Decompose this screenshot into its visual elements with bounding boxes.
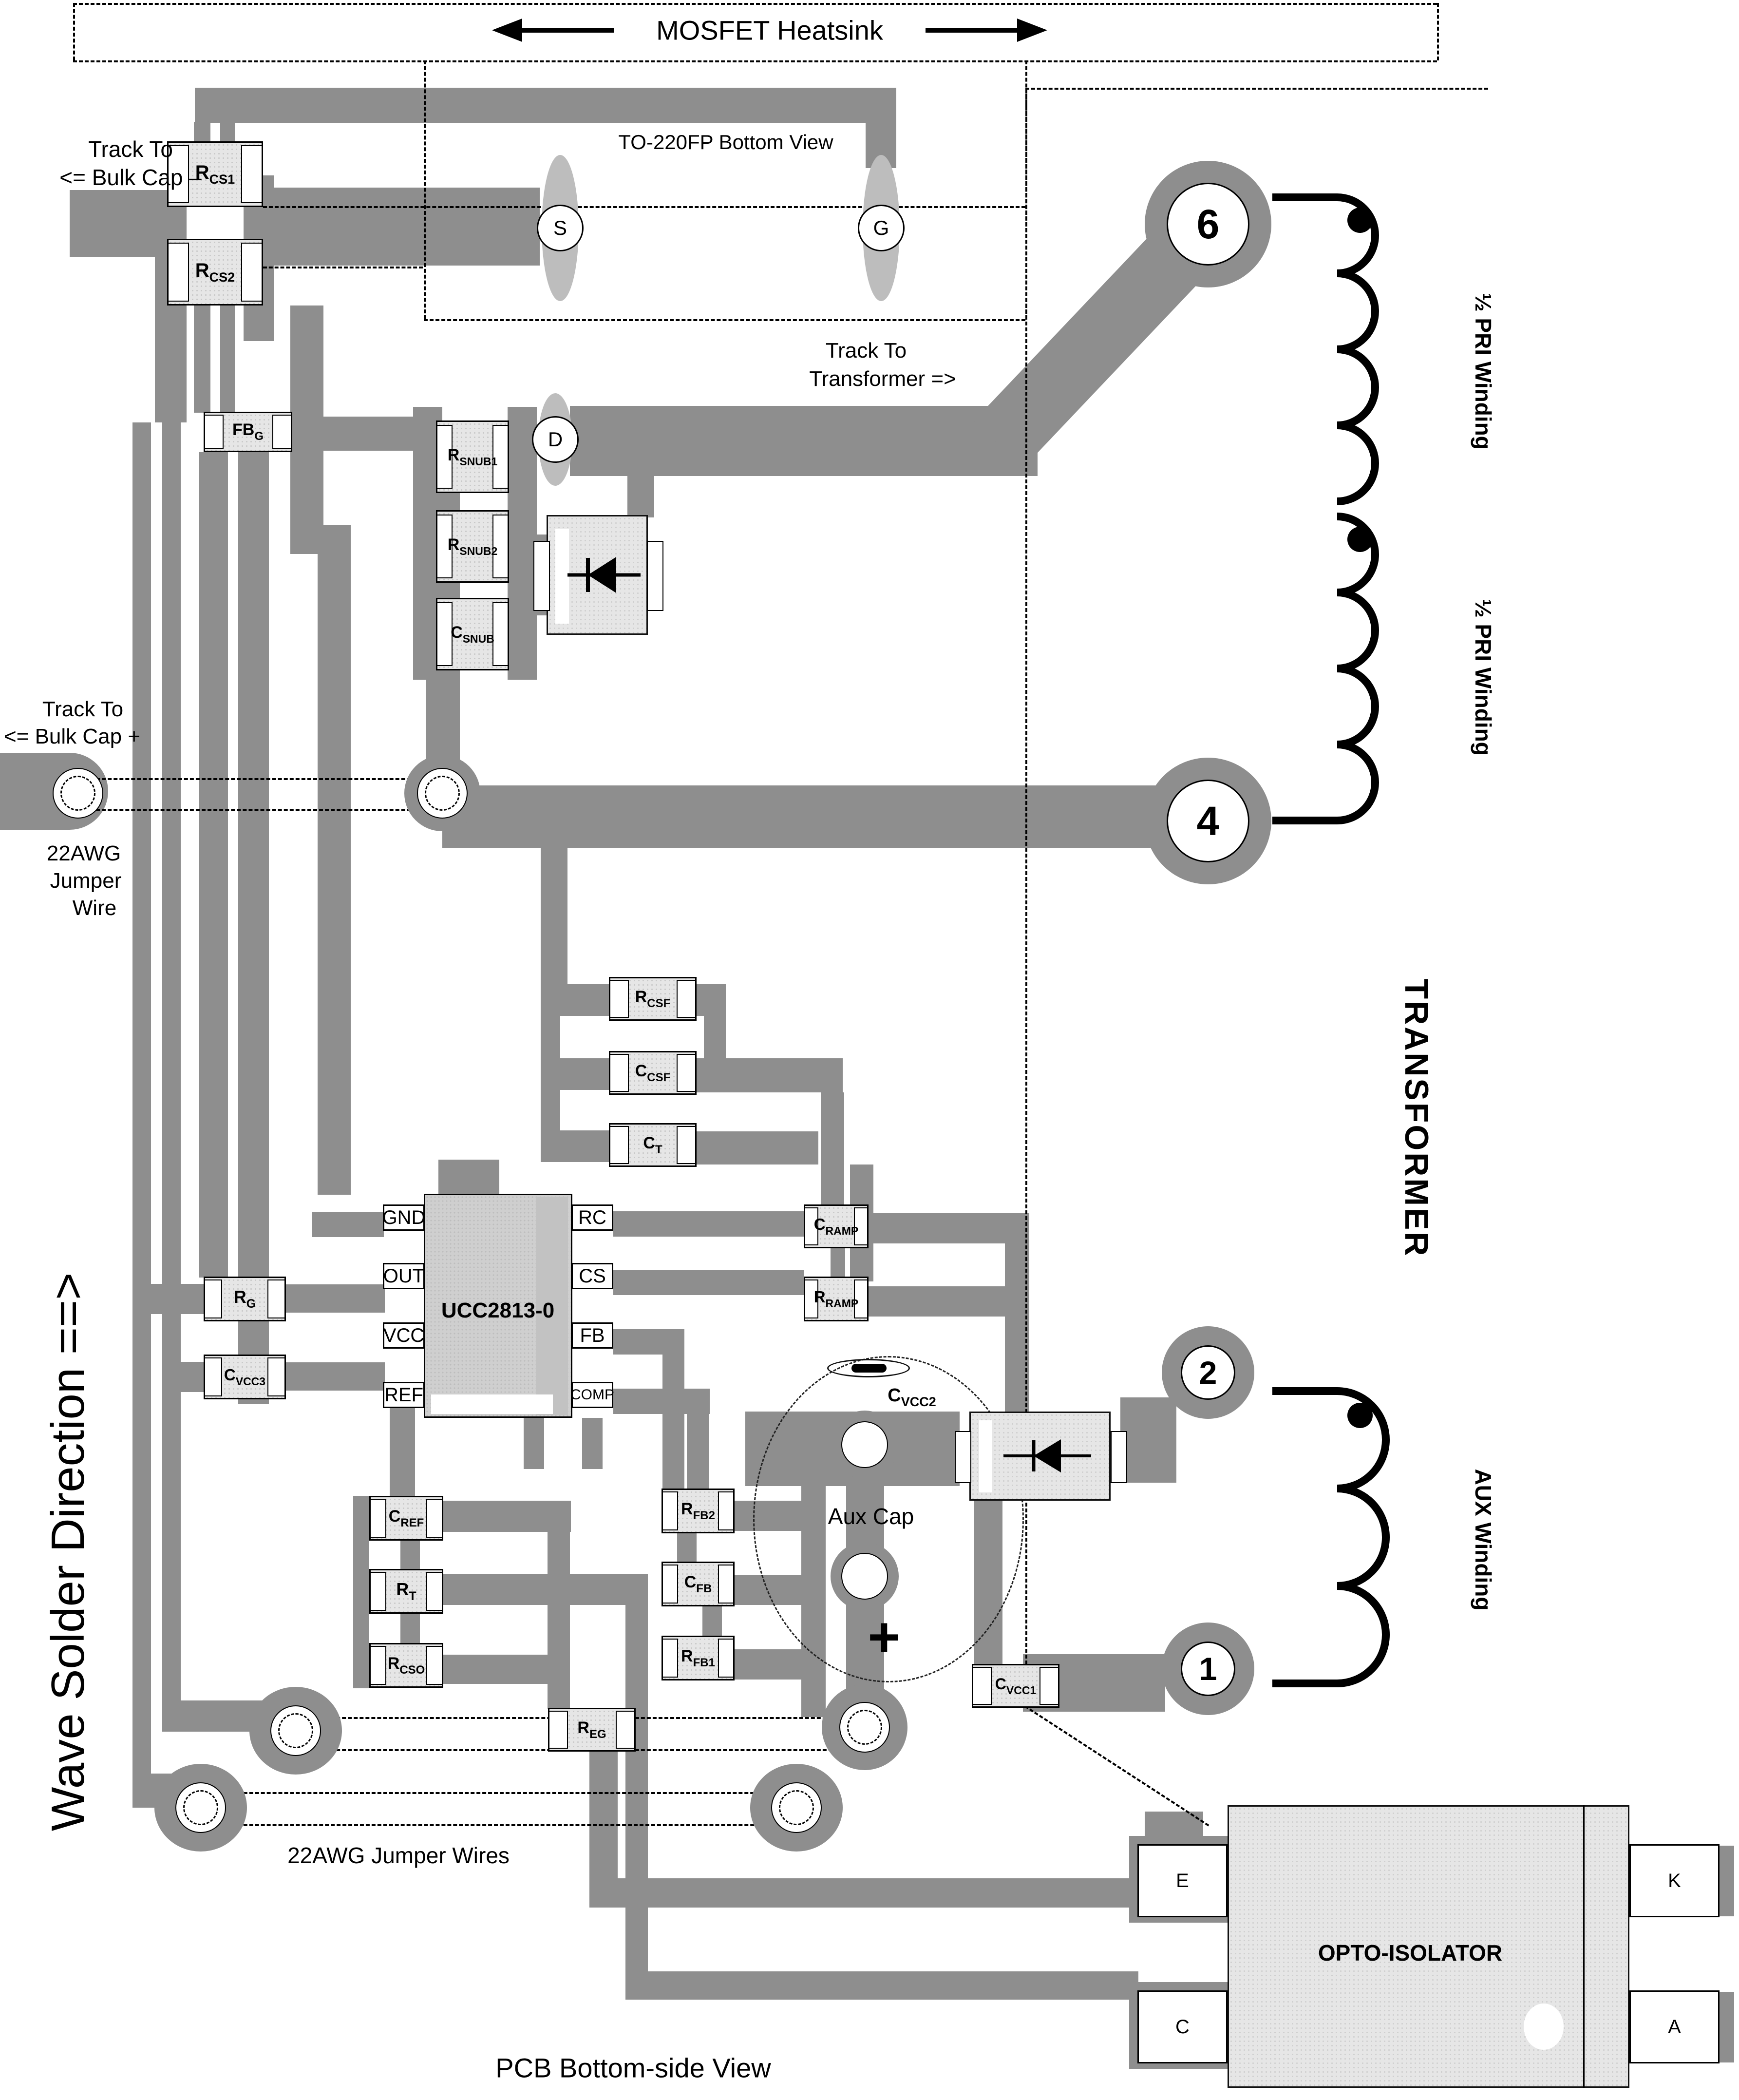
jumper-wires-label: 22AWG Jumper Wires [287, 1842, 510, 1869]
track-bulk-plus-label: <= Bulk Cap + [4, 725, 140, 749]
jumper-wire-label: Wire [73, 896, 116, 920]
aux-plus-label: + [868, 1605, 900, 1669]
aux-winding-label: AUX Winding [1470, 1469, 1496, 1611]
arrow-left-icon [492, 15, 614, 46]
to220-label: TO-220FP Bottom View [618, 131, 833, 154]
track-transformer-label: Transformer => [809, 367, 956, 391]
pcb-view-label: PCB Bottom-side View [495, 2052, 771, 2084]
pri-winding-1-label: ½ PRI Winding [1470, 293, 1496, 450]
pcb-layout-diagram: RCS1 RCS2 FBG RSNUB1 RSNUB2 CSNUB RCSF C… [0, 0, 1739, 2100]
track-bulk-minus-label: Track To [88, 136, 173, 162]
transformer-label: TRANSFORMER [1398, 979, 1436, 1258]
arrow-right-icon [926, 15, 1047, 46]
wave-solder-label: Wave Solder Direction ==> [41, 1273, 95, 1831]
track-transformer-label: Track To [826, 339, 907, 363]
jumper-wire-label: 22AWG [47, 841, 121, 866]
track-bulk-minus-label: <= Bulk Cap – [59, 164, 202, 191]
heatsink-label: MOSFET Heatsink [656, 15, 883, 46]
aux-cap-label: Aux Cap [828, 1503, 914, 1529]
pri-winding-2-label: ½ PRI Winding [1470, 599, 1496, 756]
jumper-wire-label: Jumper [50, 869, 122, 893]
cvcc2-label: CVCC2 [888, 1385, 936, 1410]
track-bulk-plus-label: Track To [42, 697, 123, 722]
